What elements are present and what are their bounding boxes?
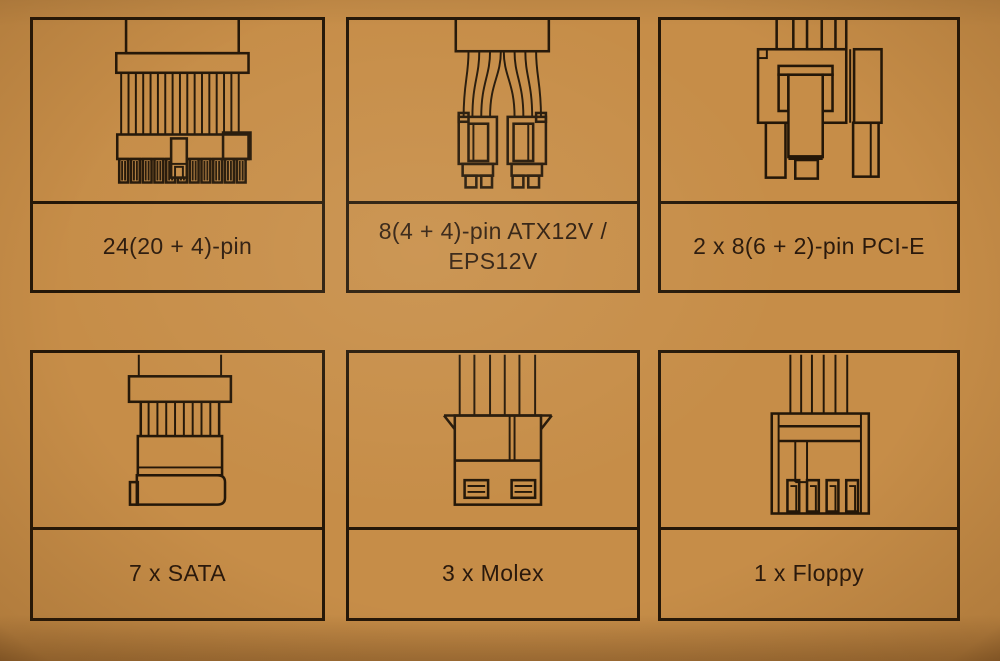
- connector-caption: 1 x Floppy: [661, 530, 957, 618]
- connector-cell-pcie: 2 x 8(6 + 2)-pin PCI-E: [658, 17, 960, 293]
- connector-caption: 3 x Molex: [349, 530, 637, 618]
- caption-label-pcie: 2 x 8(6 + 2)-pin PCI-E: [693, 232, 925, 262]
- connector-cell-atx24: 24(20 + 4)-pin: [30, 17, 325, 293]
- connector-cell-molex: 3 x Molex: [346, 350, 640, 621]
- sata-connector-drawing: [33, 353, 322, 530]
- eps-connector-drawing: [349, 20, 637, 204]
- caption-label-floppy: 1 x Floppy: [754, 559, 864, 589]
- 24pin-atx-connector-icon: [33, 20, 322, 201]
- floppy-connector-icon: [661, 353, 957, 527]
- connector-caption: 2 x 8(6 + 2)-pin PCI-E: [661, 204, 957, 290]
- connector-caption: 24(20 + 4)-pin: [33, 204, 322, 290]
- molex-connector-icon: [349, 353, 637, 527]
- connector-caption: 7 x SATA: [33, 530, 322, 618]
- connector-cell-eps: 8(4 + 4)-pin ATX12V / EPS12V: [346, 17, 640, 293]
- pcie-connector-drawing: [661, 20, 957, 204]
- connector-caption: 8(4 + 4)-pin ATX12V / EPS12V: [349, 204, 637, 290]
- caption-label-sata: 7 x SATA: [129, 559, 226, 589]
- connector-diagram-grid: 24(20 + 4)-pin: [0, 0, 1000, 661]
- 8pin-pcie-connector-icon: [661, 20, 957, 201]
- connector-cell-sata: 7 x SATA: [30, 350, 325, 621]
- caption-label-atx24: 24(20 + 4)-pin: [103, 232, 252, 262]
- caption-label-eps: 8(4 + 4)-pin ATX12V / EPS12V: [363, 217, 623, 277]
- sata-connector-icon: [33, 353, 322, 527]
- caption-label-molex: 3 x Molex: [442, 559, 544, 589]
- atx24-connector-drawing: [33, 20, 322, 204]
- connector-cell-floppy: 1 x Floppy: [658, 350, 960, 621]
- floppy-connector-drawing: [661, 353, 957, 530]
- molex-connector-drawing: [349, 353, 637, 530]
- 8pin-eps-connector-icon: [349, 20, 637, 201]
